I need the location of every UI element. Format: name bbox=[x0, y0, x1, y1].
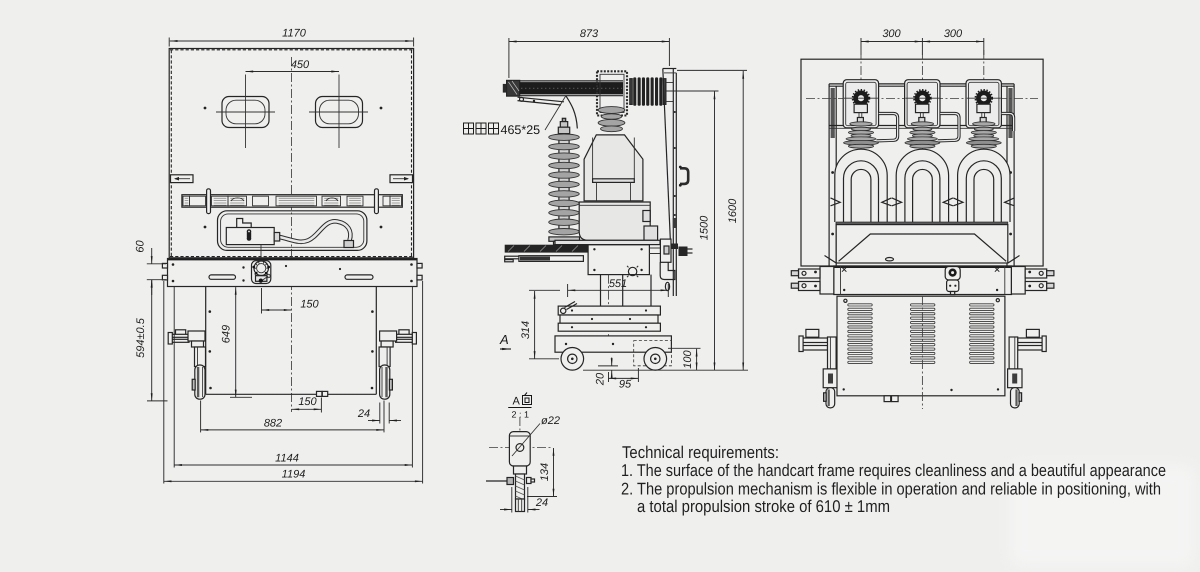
svg-text:882: 882 bbox=[264, 417, 282, 429]
svg-text:a total propulsion stroke of 6: a total propulsion stroke of 610 ± 1mm bbox=[637, 497, 890, 516]
svg-text:314: 314 bbox=[520, 321, 532, 339]
svg-text:1600: 1600 bbox=[727, 198, 739, 223]
svg-text:649: 649 bbox=[220, 325, 232, 343]
svg-text:594±0.5: 594±0.5 bbox=[135, 317, 147, 358]
svg-text:60: 60 bbox=[135, 240, 147, 253]
svg-text:150: 150 bbox=[300, 299, 319, 311]
svg-text:A: A bbox=[513, 396, 521, 408]
svg-text:134: 134 bbox=[539, 463, 551, 481]
svg-text:Technical requirements:: Technical requirements: bbox=[622, 443, 779, 462]
svg-text:873: 873 bbox=[580, 28, 599, 40]
svg-text:450: 450 bbox=[291, 59, 310, 71]
svg-text:1144: 1144 bbox=[275, 452, 299, 464]
svg-text:551: 551 bbox=[609, 278, 627, 290]
svg-text:24: 24 bbox=[357, 408, 370, 420]
svg-text:300: 300 bbox=[944, 28, 963, 40]
svg-text:465*25: 465*25 bbox=[501, 123, 541, 137]
svg-text:20: 20 bbox=[595, 372, 607, 386]
svg-text:1170: 1170 bbox=[282, 28, 307, 40]
svg-text:1500: 1500 bbox=[699, 215, 711, 240]
svg-text:2. The propulsion mechanism is: 2. The propulsion mechanism is flexible … bbox=[621, 480, 1161, 499]
svg-text:1. The surface of the handcart: 1. The surface of the handcart frame req… bbox=[621, 461, 1166, 480]
svg-text:24: 24 bbox=[535, 497, 548, 509]
svg-text:95: 95 bbox=[619, 379, 632, 391]
svg-text:100: 100 bbox=[682, 349, 694, 368]
svg-text:ø22: ø22 bbox=[541, 415, 560, 427]
svg-text:150: 150 bbox=[298, 396, 317, 408]
svg-text:A: A bbox=[499, 332, 509, 347]
svg-text:300: 300 bbox=[882, 28, 901, 40]
svg-text:1194: 1194 bbox=[282, 469, 306, 481]
